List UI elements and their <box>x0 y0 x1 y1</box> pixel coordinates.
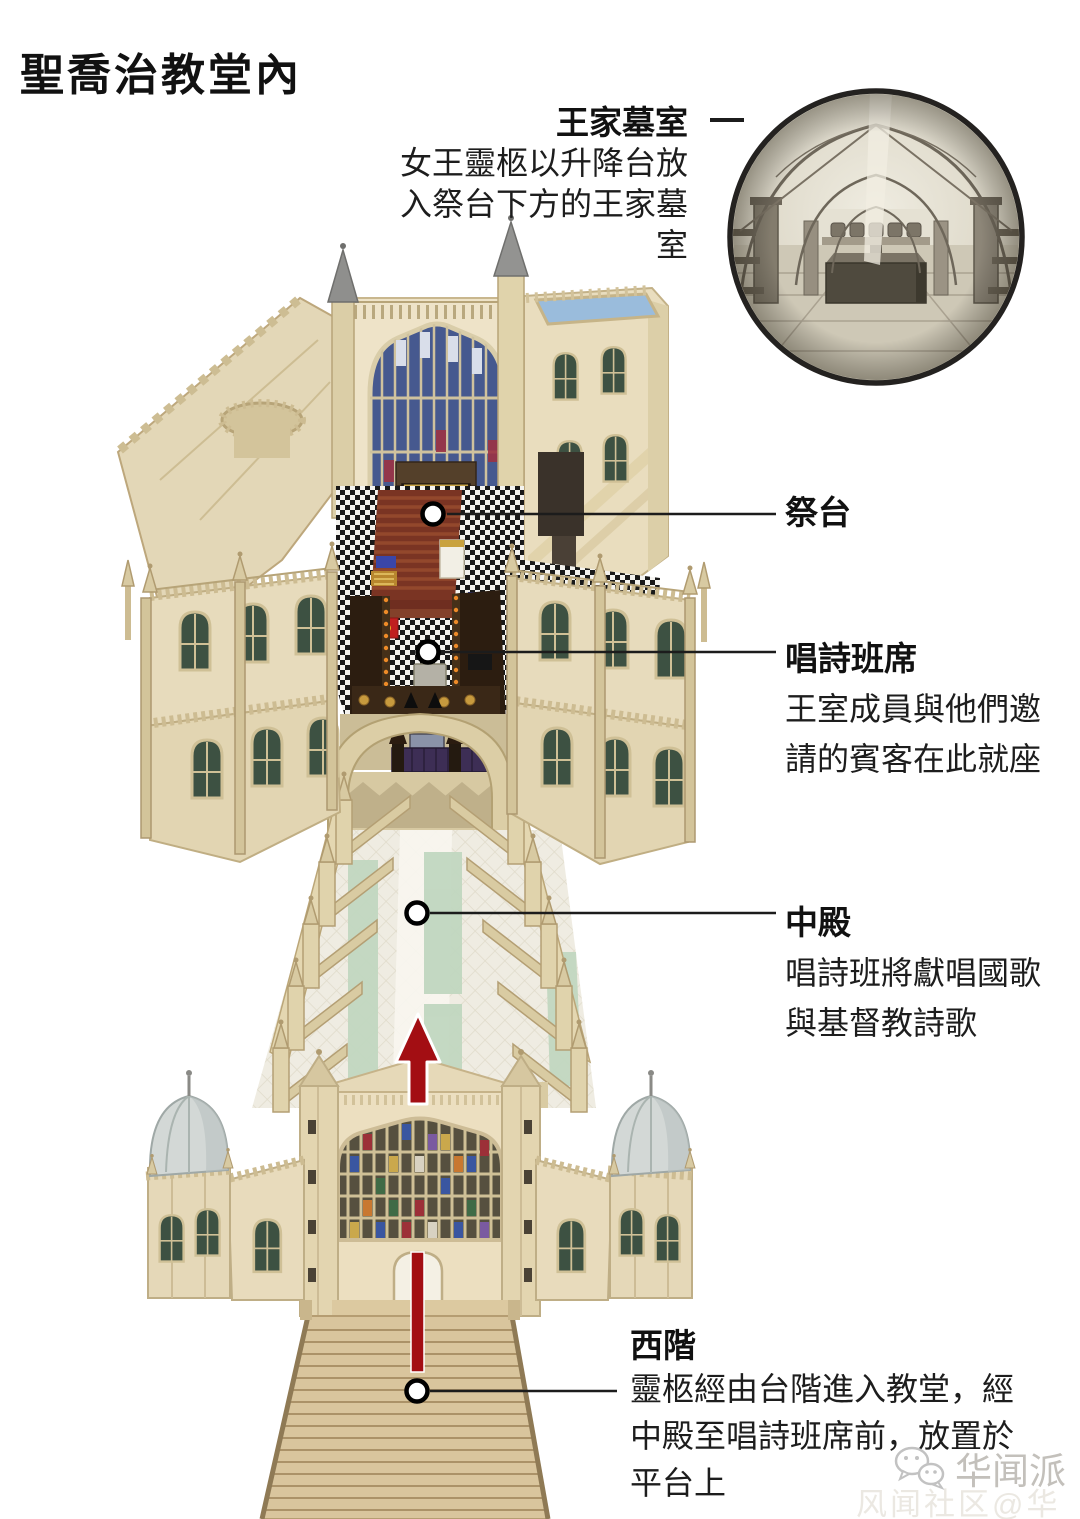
choir-desc-line2: 請的賓客在此就座 <box>785 734 1041 784</box>
callout-royal-vault: 王家墓室 女王靈柩以升降台放 入祭台下方的王家墓 室 <box>400 102 688 266</box>
callout-dot-west-steps <box>407 1381 428 1402</box>
callout-dot-choir <box>418 642 439 663</box>
nave-desc-line2: 與基督教詩歌 <box>785 998 1041 1048</box>
callout-dot-nave <box>407 903 428 924</box>
northeast-range <box>524 288 668 610</box>
route-line <box>411 1252 424 1372</box>
watermark-text: 华闻派 <box>955 1441 1066 1495</box>
left-wing <box>122 542 340 863</box>
callout-nave: 中殿 唱詩班將獻唱國歌 與基督教詩歌 <box>785 898 1041 1048</box>
callout-choir: 唱詩班席 王室成員與他們邀 請的賓客在此就座 <box>785 634 1041 784</box>
west-steps-label: 西階 <box>630 1326 1014 1366</box>
infographic-st-georges-chapel: 聖喬治教堂內 王家墓室 女王靈柩以升降台放 入祭台下方的王家墓 室 祭台 唱詩班… <box>0 0 1080 1519</box>
west-steps-desc-line1: 靈柩經由台階進入教堂，經 <box>630 1366 1014 1413</box>
royal-vault-desc-line2: 入祭台下方的王家墓 <box>400 184 688 225</box>
altar-label: 祭台 <box>785 496 851 530</box>
royal-vault-desc-line3: 室 <box>400 225 688 266</box>
chapel-building <box>118 215 710 1519</box>
choir-desc-line1: 王室成員與他們邀 <box>785 684 1041 734</box>
royal-vault-label: 王家墓室 <box>400 102 688 143</box>
royal-vault-desc-line1: 女王靈柩以升降台放 <box>400 143 688 184</box>
royal-vault-inset-photo <box>730 91 1022 385</box>
choir-label: 唱詩班席 <box>785 634 1041 684</box>
nave-label: 中殿 <box>785 898 1041 948</box>
right-wing <box>505 544 710 865</box>
nave-desc-line1: 唱詩班將獻唱國歌 <box>785 948 1041 998</box>
watermark: 华闻派 <box>893 1441 1066 1495</box>
page-title: 聖喬治教堂內 <box>20 39 302 103</box>
west-steps <box>250 1300 560 1519</box>
wechat-icon <box>893 1445 947 1491</box>
callout-dot-altar <box>423 504 444 525</box>
callout-altar: 祭台 <box>785 496 851 530</box>
